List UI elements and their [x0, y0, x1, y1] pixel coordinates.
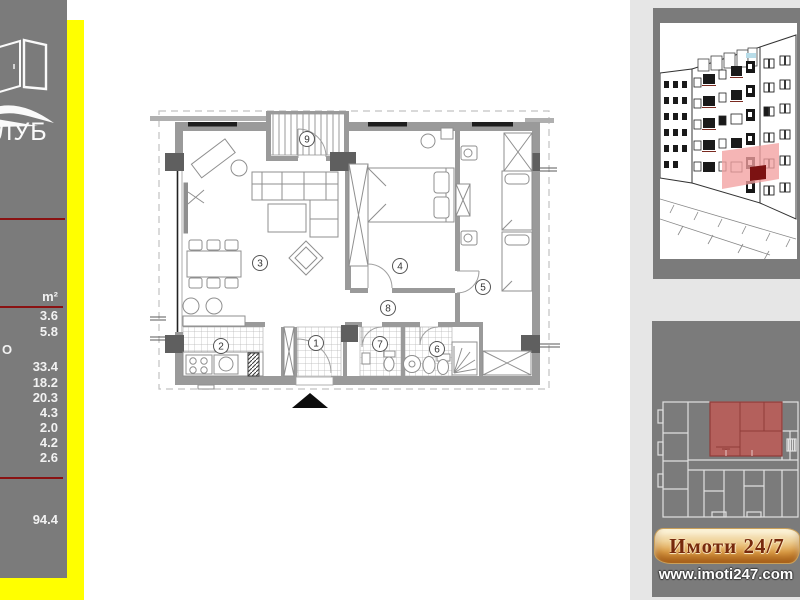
double-bed	[368, 168, 454, 222]
brand-name: Имоти 24/7	[669, 534, 785, 559]
nightstand	[421, 134, 435, 148]
divider-line	[0, 218, 65, 220]
brand-website: www.imoti247.com	[652, 566, 800, 583]
svg-text:3: 3	[257, 259, 263, 270]
area-value: 5.8	[0, 325, 58, 339]
room-label-6: 6	[430, 342, 445, 357]
svg-text:7: 7	[377, 340, 383, 351]
svg-text:9: 9	[304, 135, 310, 146]
svg-text:6: 6	[434, 345, 440, 356]
room-label-9: 9	[300, 132, 315, 147]
room-label-2: 2	[214, 339, 229, 354]
area-value: 20.3	[0, 391, 58, 405]
overview-unit-highlight	[710, 402, 782, 456]
area-value: 18.2	[0, 376, 58, 390]
room-label-1: 1	[309, 336, 324, 351]
building-blocks-icon	[0, 40, 46, 93]
adjacent-slabs	[150, 116, 554, 123]
brand-banner: Имоти 24/7	[654, 528, 800, 564]
entrance-arrow	[292, 393, 328, 408]
tv-symbol	[188, 190, 204, 204]
room-label-5: 5	[476, 280, 491, 295]
floor-overview-panel: Имоти 24/7 www.imoti247.com	[652, 321, 800, 597]
svg-text:2: 2	[218, 342, 224, 353]
sidebar: ЛУБ m² 3.6 5.8 О 33.4 18.2 20.3 4.3 2.0 …	[0, 0, 67, 578]
building-elevation-drawing	[660, 23, 797, 259]
divider-line	[0, 477, 63, 479]
svg-text:5: 5	[480, 283, 486, 294]
armchair	[289, 241, 323, 275]
area-total: 94.4	[0, 513, 58, 527]
area-value: 2.0	[0, 421, 58, 435]
accent-stripe-bottom	[0, 578, 84, 600]
area-value: 33.4	[0, 360, 58, 374]
svg-text:8: 8	[385, 304, 391, 315]
area-value: 4.3	[0, 406, 58, 420]
kitchen-bar	[183, 298, 245, 326]
nightstand	[441, 128, 453, 139]
room-label-7: 7	[373, 337, 388, 352]
svg-text:1: 1	[313, 339, 319, 350]
cut-room-label: О	[2, 342, 12, 357]
area-value: 4.2	[0, 436, 58, 450]
room-label-3: 3	[253, 256, 268, 271]
apartment-floor-plan: 9 3 4 5 8 2 1 7 6	[148, 95, 560, 425]
room-label-8: 8	[381, 301, 396, 316]
area-value: 2.6	[0, 451, 58, 465]
elevation-unit-highlight-dark	[750, 165, 766, 181]
room-label-4: 4	[393, 259, 408, 274]
desk	[191, 139, 235, 178]
glazed-wall	[175, 170, 183, 332]
svg-text:4: 4	[397, 262, 403, 273]
coffee-table	[268, 204, 306, 232]
agency-logo: ЛУБ	[0, 36, 66, 146]
tv-unit	[184, 183, 188, 233]
logo-text-fragment: ЛУБ	[0, 118, 48, 146]
accent-stripe-vertical	[67, 20, 84, 600]
area-unit-header: m²	[0, 290, 58, 304]
building-elevation-panel	[653, 8, 800, 279]
area-value: 3.6	[0, 309, 58, 323]
listing-image: ЛУБ m² 3.6 5.8 О 33.4 18.2 20.3 4.3 2.0 …	[0, 0, 800, 600]
desk-chair	[231, 160, 247, 176]
entry-threshold	[296, 377, 333, 385]
elevation-canvas	[660, 23, 797, 259]
dining-set	[187, 240, 241, 288]
